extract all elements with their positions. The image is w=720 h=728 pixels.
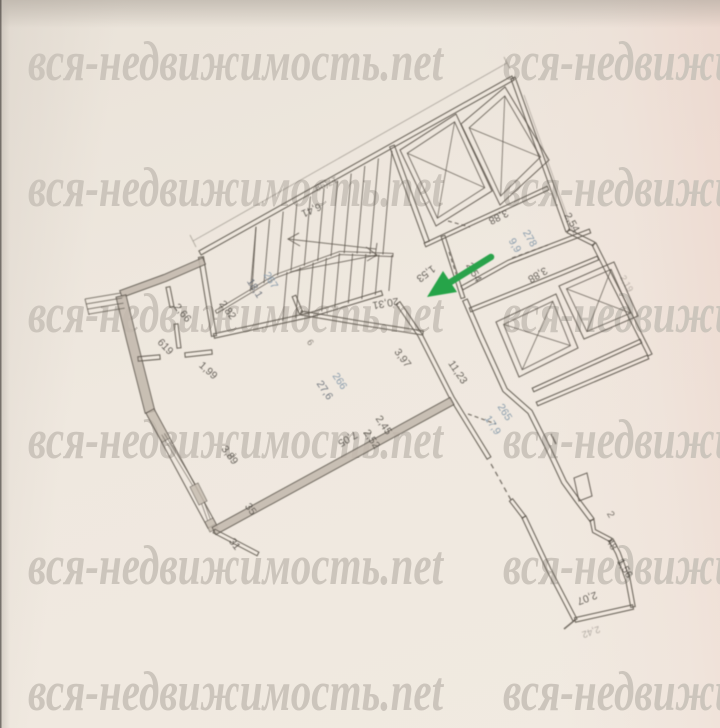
svg-text:266: 266 — [330, 371, 350, 392]
svg-text:2,42: 2,42 — [580, 623, 601, 640]
svg-text:2: 2 — [604, 509, 617, 520]
svg-text:3,88: 3,88 — [486, 207, 510, 227]
svg-text:1,99: 1,99 — [196, 359, 219, 382]
svg-text:18,1: 18,1 — [244, 277, 265, 301]
svg-text:17,9: 17,9 — [482, 414, 503, 438]
svg-text:2,54: 2,54 — [561, 211, 581, 235]
svg-text:619: 619 — [155, 336, 176, 357]
svg-text:6: 6 — [305, 337, 316, 347]
svg-text:31: 31 — [226, 536, 243, 553]
svg-text:17,99: 17,99 — [313, 173, 339, 193]
svg-text:1,53: 1,53 — [414, 262, 438, 284]
svg-text:27,6: 27,6 — [314, 378, 335, 402]
svg-text:265: 265 — [495, 402, 515, 423]
svg-text:7,05: 7,05 — [336, 428, 360, 449]
svg-text:6,41: 6,41 — [299, 200, 323, 219]
svg-text:2,66: 2,66 — [171, 301, 193, 324]
svg-text:3,89: 3,89 — [218, 443, 240, 467]
svg-text:9,9: 9,9 — [506, 236, 524, 255]
svg-text:11,23: 11,23 — [445, 358, 469, 386]
svg-text:2,07: 2,07 — [575, 589, 598, 607]
svg-text:3,97: 3,97 — [391, 346, 413, 370]
svg-text:1,56: 1,56 — [614, 557, 635, 581]
